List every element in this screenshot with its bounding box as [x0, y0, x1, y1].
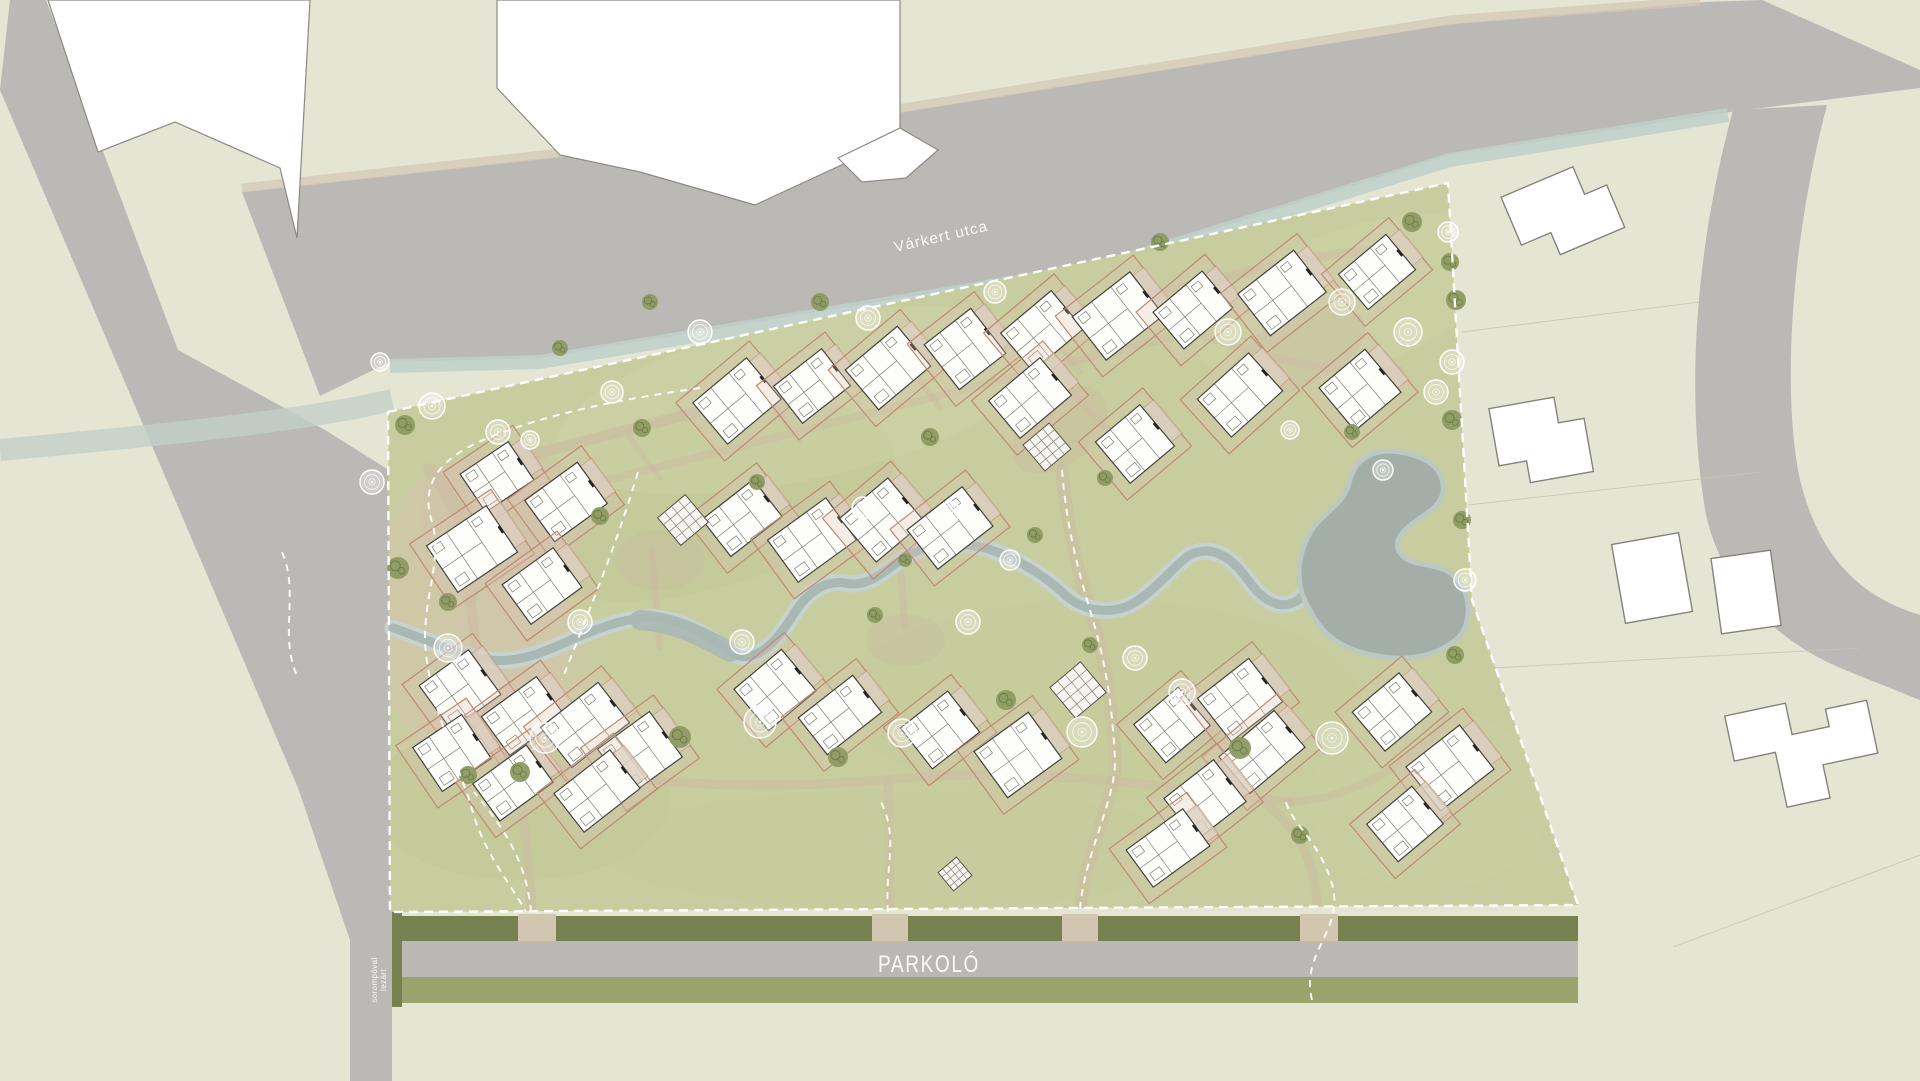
svg-text:lezárt: lezárt — [379, 969, 388, 991]
tree-white — [1454, 569, 1476, 591]
tree-white — [730, 630, 754, 654]
tree-white — [744, 706, 776, 738]
tree-olive — [1446, 646, 1464, 664]
tree-white — [956, 610, 980, 634]
parking-label: PARKOLÓ — [878, 951, 980, 978]
verge-strip — [402, 977, 1578, 1003]
tree-olive — [459, 766, 477, 784]
tree-olive — [898, 553, 912, 567]
tree-olive — [387, 557, 409, 579]
tree-olive — [1082, 637, 1098, 653]
tree-olive — [552, 340, 568, 356]
tree-white — [940, 502, 960, 522]
tree-white — [1438, 222, 1458, 242]
tree-white — [1394, 318, 1422, 346]
tree-olive — [1344, 424, 1360, 440]
tree-white — [434, 634, 462, 662]
tree-white — [1169, 679, 1195, 705]
road-parking — [402, 941, 1578, 977]
tree-olive — [828, 747, 848, 767]
tree-olive — [510, 762, 530, 782]
neighbor-house — [1711, 550, 1781, 634]
tree-olive — [1229, 737, 1251, 759]
tree-white — [888, 719, 916, 747]
tree-olive — [591, 507, 609, 525]
tree-olive — [1441, 253, 1459, 271]
tree-white — [601, 381, 623, 403]
tree-olive — [1097, 470, 1113, 486]
tree-olive — [439, 593, 457, 611]
tree-olive — [1402, 212, 1422, 232]
tree-olive — [669, 726, 691, 748]
tree-olive — [811, 293, 829, 311]
tree-olive — [395, 415, 415, 435]
tree-white — [852, 497, 874, 519]
tree-white — [486, 420, 510, 444]
svg-text:sorompóval: sorompóval — [370, 957, 379, 1002]
tree-olive — [867, 607, 883, 623]
site-plan-map: Várkert utca PARKOLÓ sorompóval lezárt — [0, 0, 1920, 1081]
tree-olive — [921, 428, 939, 446]
tree-white — [1424, 380, 1448, 404]
tree-white — [1316, 722, 1348, 754]
tree-white — [1329, 289, 1355, 315]
tree-white — [1000, 550, 1020, 570]
tree-white — [1281, 421, 1299, 439]
tree-white — [521, 431, 539, 449]
neighbor-house — [1612, 533, 1693, 624]
tree-olive — [633, 419, 651, 437]
tree-white — [1440, 350, 1464, 374]
tree-olive — [1151, 233, 1169, 251]
tree-white — [1067, 717, 1097, 747]
tree-olive — [996, 690, 1016, 710]
tree-olive — [642, 294, 658, 310]
site-plan-page: Várkert utca PARKOLÓ sorompóval lezárt — [0, 0, 1920, 1081]
tree-olive — [1291, 826, 1309, 844]
tree-white — [688, 320, 712, 344]
tree-white — [1123, 646, 1147, 670]
tree-white — [530, 723, 560, 753]
tree-olive — [1027, 527, 1043, 543]
tree-white — [1373, 460, 1393, 480]
tree-white — [371, 353, 389, 371]
tree-white — [419, 393, 445, 419]
tree-white — [360, 470, 384, 494]
tree-white — [1215, 319, 1241, 345]
tree-white — [984, 281, 1006, 303]
tree-olive — [1442, 410, 1462, 430]
tree-olive — [749, 474, 765, 490]
